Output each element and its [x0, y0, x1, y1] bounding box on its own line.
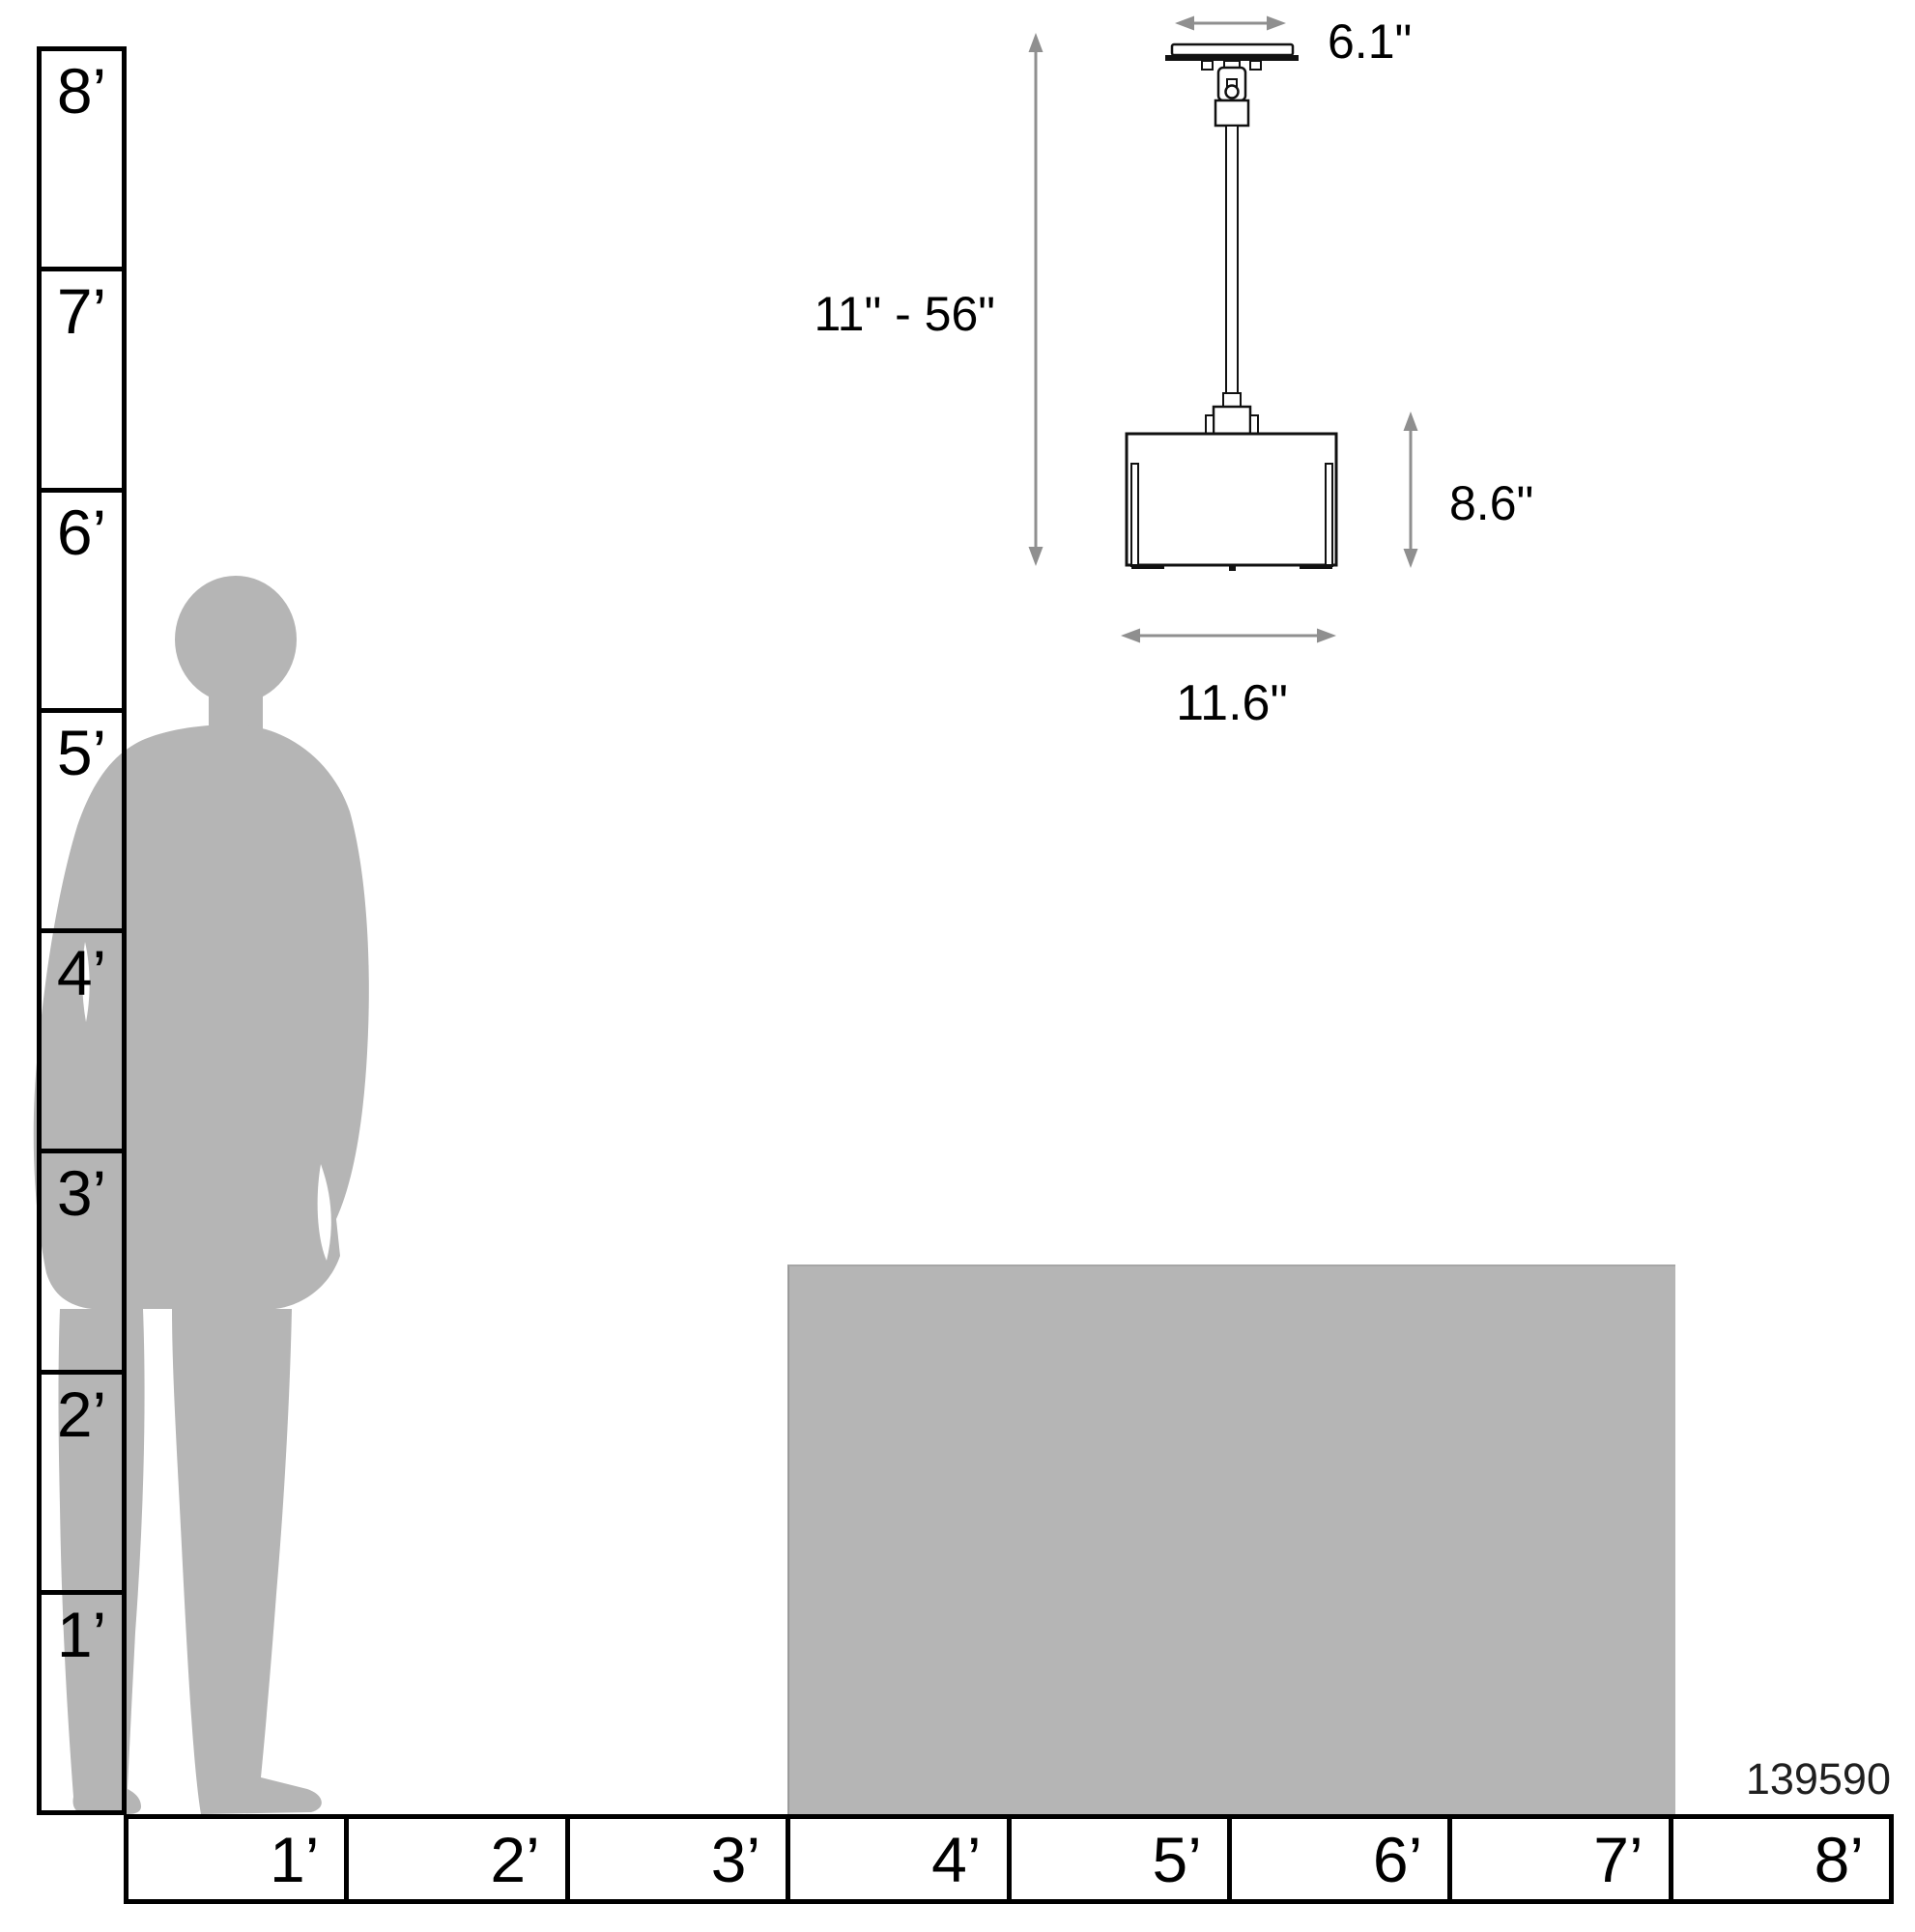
canopy-width-label: 6.1" — [1328, 15, 1412, 69]
ruler-cell: 3’ — [565, 1819, 786, 1899]
ruler-label: 4’ — [931, 1828, 981, 1891]
ruler-label: 4’ — [57, 937, 106, 1009]
ruler-label: 8’ — [57, 55, 106, 127]
ruler-cell: 8’ — [42, 51, 122, 267]
ruler-label: 2’ — [490, 1828, 539, 1891]
scale-diagram: 8’ 7’ 6’ 5’ 4’ 3’ 2’ 1’ 1’ 2’ 3’ 4’ 5’ 6… — [0, 0, 1915, 1932]
ruler-cell: 6’ — [1227, 1819, 1447, 1899]
ruler-cell: 5’ — [42, 708, 122, 928]
ruler-label: 7’ — [1593, 1828, 1643, 1891]
ruler-label: 3’ — [57, 1157, 106, 1229]
ruler-label: 5’ — [57, 717, 106, 788]
ruler-label: 6’ — [1373, 1828, 1422, 1891]
shade — [1127, 434, 1336, 565]
ruler-cell: 5’ — [1007, 1819, 1227, 1899]
shade-width-label: 11.6" — [1130, 676, 1333, 731]
ruler-cell: 2’ — [344, 1819, 564, 1899]
canopy-width-arrow — [1175, 16, 1286, 31]
down-rod — [1226, 126, 1238, 393]
ruler-cell: 8’ — [1669, 1819, 1889, 1899]
ruler-label: 7’ — [57, 275, 106, 347]
ruler-cell: 7’ — [1447, 1819, 1668, 1899]
ruler-label: 1’ — [270, 1828, 319, 1891]
height-range-arrow — [1029, 33, 1043, 566]
ruler-cell: 1’ — [129, 1819, 344, 1899]
ruler-label: 5’ — [1153, 1828, 1202, 1891]
ruler-label: 3’ — [711, 1828, 760, 1891]
height-range-label: 11" - 56" — [754, 288, 995, 341]
ruler-label: 1’ — [57, 1599, 106, 1670]
ruler-cell: 3’ — [42, 1149, 122, 1369]
shade-height-label: 8.6" — [1449, 477, 1533, 530]
pendant-fixture-drawing — [1127, 44, 1336, 571]
shade-height-arrow — [1404, 412, 1418, 568]
shade-width-arrow — [1121, 629, 1336, 643]
ruler-cell: 7’ — [42, 267, 122, 487]
vertical-ruler: 8’ 7’ 6’ 5’ 4’ 3’ 2’ 1’ — [37, 46, 127, 1815]
ruler-cell: 4’ — [42, 928, 122, 1149]
ruler-label: 6’ — [57, 497, 106, 568]
horizontal-ruler: 1’ 2’ 3’ 4’ 5’ 6’ 7’ 8’ — [124, 1814, 1894, 1904]
canopy — [1172, 44, 1293, 55]
ruler-cell: 6’ — [42, 488, 122, 708]
ruler-cell: 4’ — [786, 1819, 1006, 1899]
ruler-label: 8’ — [1815, 1828, 1864, 1891]
ruler-label: 2’ — [57, 1378, 106, 1450]
product-code: 139590 — [1643, 1754, 1891, 1804]
ruler-cell: 2’ — [42, 1370, 122, 1590]
ruler-cell: 1’ — [42, 1590, 122, 1810]
